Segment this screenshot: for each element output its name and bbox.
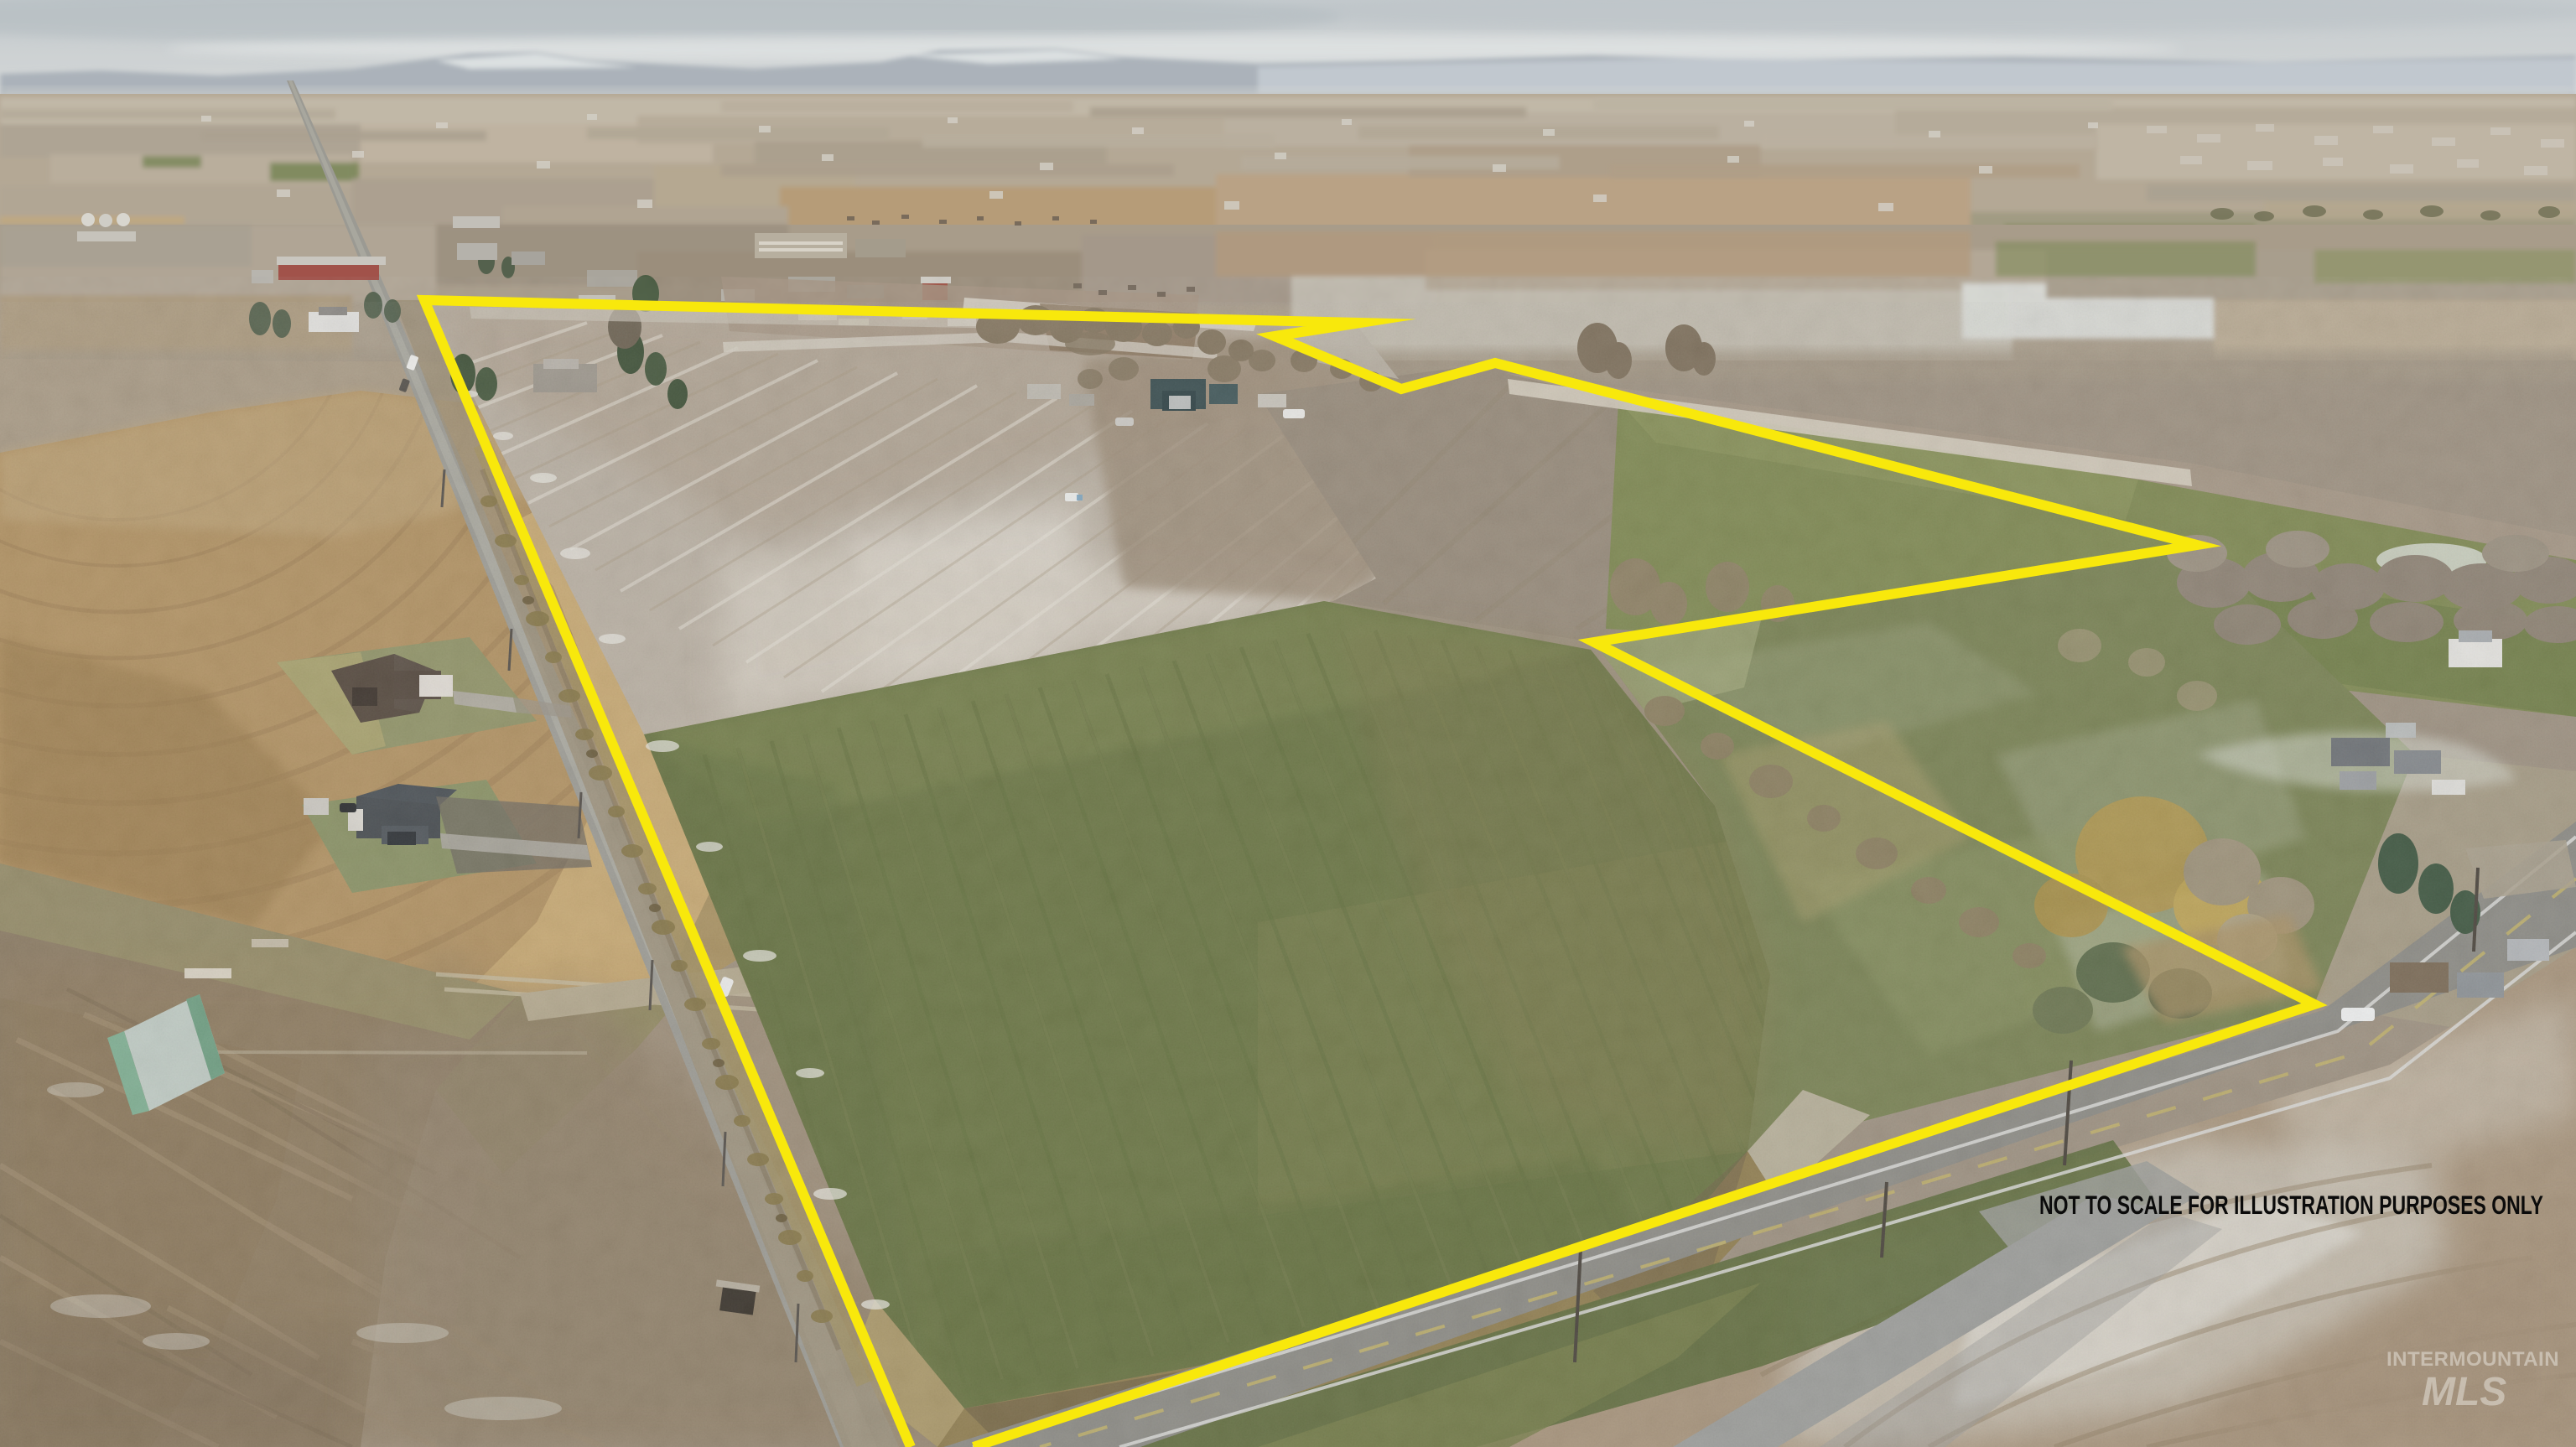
- svg-text:NOT TO SCALE FOR ILLUSTRATION: NOT TO SCALE FOR ILLUSTRATION PURPOSES O…: [2039, 1190, 2543, 1220]
- svg-text:MLS: MLS: [2422, 1370, 2506, 1414]
- svg-text:INTERMOUNTAIN: INTERMOUNTAIN: [2386, 1348, 2559, 1371]
